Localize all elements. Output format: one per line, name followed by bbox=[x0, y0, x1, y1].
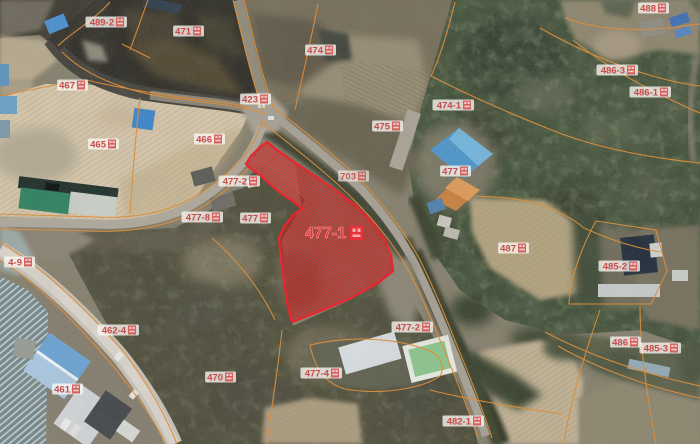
svg-text:477: 477 bbox=[242, 214, 258, 225]
svg-text:477-1: 477-1 bbox=[305, 225, 346, 242]
svg-text:465: 465 bbox=[90, 140, 107, 151]
svg-text:467: 467 bbox=[59, 81, 75, 92]
svg-text:489-2: 489-2 bbox=[90, 18, 114, 29]
svg-text:471: 471 bbox=[175, 27, 192, 38]
svg-text:470: 470 bbox=[207, 373, 223, 384]
svg-text:477-8: 477-8 bbox=[186, 213, 210, 224]
svg-text:485-3: 485-3 bbox=[644, 344, 668, 355]
svg-text:462-4: 462-4 bbox=[102, 326, 127, 337]
svg-text:474: 474 bbox=[307, 46, 324, 57]
svg-text:461: 461 bbox=[54, 385, 71, 396]
svg-text:475: 475 bbox=[374, 122, 391, 133]
svg-text:488: 488 bbox=[640, 4, 656, 15]
svg-text:477: 477 bbox=[442, 167, 458, 178]
svg-text:486-3: 486-3 bbox=[601, 66, 625, 77]
svg-text:477-4: 477-4 bbox=[305, 369, 330, 380]
svg-text:4-9: 4-9 bbox=[8, 258, 22, 269]
svg-text:486: 486 bbox=[612, 338, 628, 349]
svg-text:485-2: 485-2 bbox=[603, 262, 627, 273]
svg-text:487: 487 bbox=[500, 244, 516, 255]
svg-text:486-1: 486-1 bbox=[634, 88, 659, 99]
svg-text:423: 423 bbox=[242, 95, 258, 106]
svg-text:477-2: 477-2 bbox=[396, 323, 420, 334]
svg-text:466: 466 bbox=[196, 135, 212, 146]
svg-text:474-1: 474-1 bbox=[437, 101, 462, 112]
svg-text:477-2: 477-2 bbox=[223, 177, 247, 188]
svg-text:482-1: 482-1 bbox=[447, 417, 472, 428]
svg-text:703: 703 bbox=[340, 172, 356, 183]
